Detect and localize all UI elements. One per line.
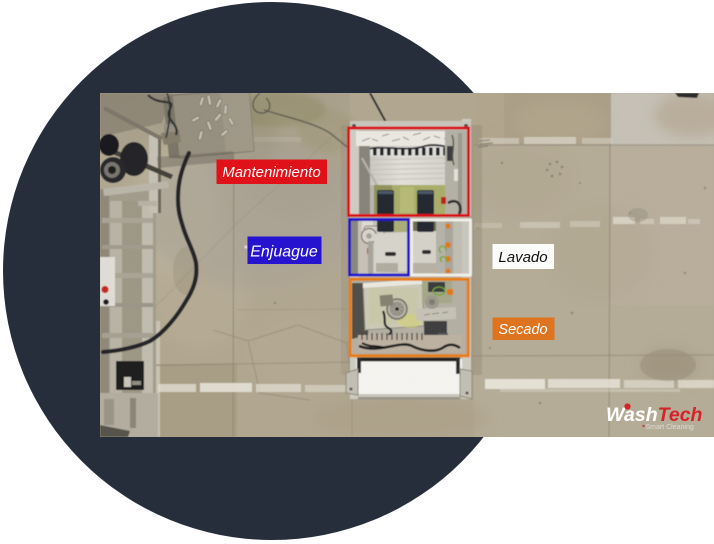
svg-text:Secado: Secado — [498, 322, 547, 338]
svg-text:Smart Cleaning: Smart Cleaning — [646, 424, 694, 431]
svg-text:WashTech: WashTech — [606, 404, 703, 426]
svg-text:Enjuague: Enjuague — [250, 244, 318, 261]
svg-text:Mantenimiento: Mantenimiento — [222, 164, 320, 181]
svg-text:Lavado: Lavado — [498, 249, 547, 266]
